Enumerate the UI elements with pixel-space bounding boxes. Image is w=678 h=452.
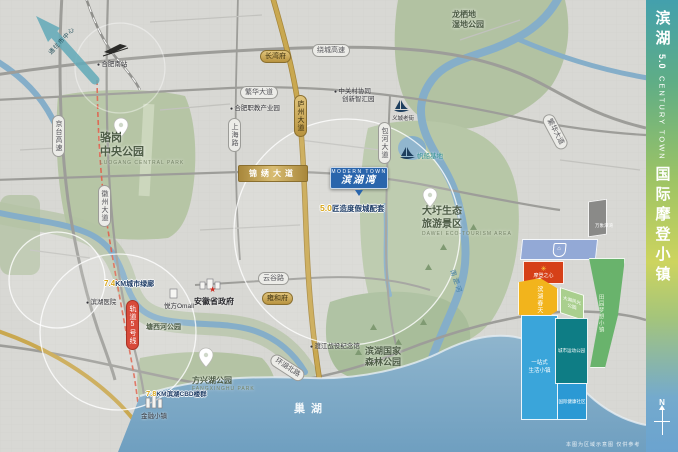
map-disclaimer: 本图为区域示意图 仅供参考 (566, 441, 640, 448)
estate-pill-yonghefu: 雍和府 (262, 292, 293, 305)
greenway-num: 7.4 (104, 279, 115, 288)
poi-yicheng: 义城老街 (392, 114, 414, 122)
project-flag: MODERN TOWN 滨湖湾 (330, 167, 388, 189)
tagline-text: 匠造度假城配套 (332, 204, 385, 213)
inset-red-label: 摩登之心 (533, 273, 553, 280)
forest-line1: 滨湖国家 (365, 346, 401, 356)
road-label-yungu: 云谷路 (258, 272, 289, 285)
brand-title: 滨湖 5.0 CENTURY TOWN 国际摩登小镇 (646, 10, 678, 390)
poi-memorial: 渡江战役纪念馆 (310, 340, 360, 350)
inset-green-label: 田园梦想小镇 (596, 294, 603, 333)
road-label-baohe: 包河大道 (378, 122, 391, 164)
poi-provincial-government: 安徽省政府 (194, 296, 234, 307)
luogang-line1: 骆岗 (100, 132, 122, 144)
inset-block-grey (588, 199, 607, 238)
luogang-line2: 中央公园 (100, 146, 144, 158)
project-tagline-banner: 5.0匠造度假城配套 (320, 203, 384, 214)
luogang-en: LUOGANG CENTRAL PARK (100, 160, 184, 166)
inset-lightblue-line2: 生活小镇 (528, 368, 550, 375)
brand-num: 5.0 (657, 54, 667, 70)
fangxing-line: 方兴湖公园 (192, 376, 232, 385)
road-label-fanhua-west: 繁华大道 (240, 86, 278, 99)
label-tangxi-park: 塘西河公园 (146, 324, 181, 333)
brand-cn-1: 滨湖 (652, 10, 673, 50)
dawei-en: DAWEI ECO-TOURISM AREA (422, 231, 512, 237)
longqidi-line2: 湿地公园 (452, 20, 484, 29)
inset-yellow-label: 滨湖春天 (534, 286, 542, 314)
road-label-luzhou: 庐州大道 (294, 95, 307, 137)
compass-cross-icon (652, 409, 672, 435)
forest-line2: 森林公园 (365, 357, 401, 367)
masterplan-inset: 万象潭湾 ⌂ ✳ 摩登之心 滨湖春天 大湖风光公园 田园梦想小镇 一站式 生活小… (515, 195, 633, 427)
road-label-raocheng: 绕城高速 (312, 44, 350, 57)
banner-cbd: 7.8KM滨湖CBD楼群 (146, 388, 207, 398)
cbd-text: KM滨湖CBD楼群 (156, 391, 206, 398)
tagline-num: 5.0 (320, 203, 332, 213)
inset-block-medblue: 国际健康社区 (557, 383, 587, 420)
poi-hefei-south-station: 合肥南站 (97, 58, 127, 68)
cbd-num: 7.8 (146, 389, 156, 398)
mall-building-icon (170, 289, 177, 298)
inset-block-teal: 城市运动公园 (555, 318, 588, 384)
road-label-shanghai: 上海路 (228, 118, 241, 152)
inset-block-logo: ⌂ (520, 239, 598, 260)
greenway-text: KM城市绿廊 (115, 281, 154, 288)
road-label-jinxiu: 锦绣大道 (238, 165, 308, 182)
poi-vocational-park: 合肥职教产业园 (230, 102, 280, 112)
inset-medblue-label: 国际健康社区 (559, 399, 586, 405)
government-star-icon: ★ (209, 286, 216, 294)
road-label-jingtai: 京台高速 (52, 115, 65, 157)
project-flag-pointer (355, 190, 363, 196)
map-poster: 绕城高速 繁华大道 繁华大道 锦绣大道 云谷路 环湖北路 京台高速 徽州大道 上… (0, 0, 678, 452)
brand-sidebar: 滨湖 5.0 CENTURY TOWN 国际摩登小镇 N (646, 0, 678, 452)
inset-strip-label: 大湖风光公园 (561, 295, 583, 314)
inset-teal-label: 城市运动公园 (558, 348, 585, 354)
poi-mall: 悦方Omall (164, 300, 194, 310)
label-luogang-park: 骆岗 中央公园 LUOGANG CENTRAL PARK (100, 132, 184, 166)
brand-cn-2: 国际摩登小镇 (652, 166, 673, 286)
brand-en: CENTURY TOWN (658, 76, 667, 161)
project-logo-shield-icon: ⌂ (552, 243, 566, 257)
dawei-line2: 旅游景区 (422, 219, 462, 230)
inset-block-lightgreen: 大湖风光公园 (560, 287, 584, 321)
compass: N (646, 398, 678, 444)
label-chaohu-lake: 巢湖 (294, 400, 328, 416)
dawei-line1: 大圩生态 (422, 206, 462, 217)
metro-line5-label: 轨道5号线 (126, 300, 139, 350)
banner-greenway: 7.4KM城市绿廊 (104, 279, 154, 289)
inset-lightblue-line1: 一站式 (531, 360, 548, 367)
longqidi-line1: 龙栖地 (452, 10, 476, 19)
project-name-cn: 滨湖湾 (341, 175, 377, 186)
poi-zgc-line2: 创新智汇园 (342, 93, 375, 103)
road-label-huizhou: 徽州大道 (98, 185, 111, 227)
inset-block-lightblue: 一站式 生活小镇 (521, 315, 558, 420)
label-dawei-scenic: 大圩生态 旅游景区 DAWEI ECO-TOURISM AREA (422, 206, 512, 237)
label-forest-park: 滨湖国家 森林公园 (365, 346, 401, 369)
poi-finance-town: 金融小镇 (141, 410, 167, 420)
starburst-icon: ✳ (541, 266, 547, 273)
estate-pill-changwanfu: 长湾府 (260, 50, 291, 63)
poi-binhu-hospital: 滨湖医院 (86, 296, 116, 306)
label-longqidi-park: 龙栖地 湿地公园 (452, 10, 484, 30)
inset-side-label: 万象潭湾 (595, 223, 613, 229)
poi-marina: 帆船基地 (417, 150, 443, 160)
